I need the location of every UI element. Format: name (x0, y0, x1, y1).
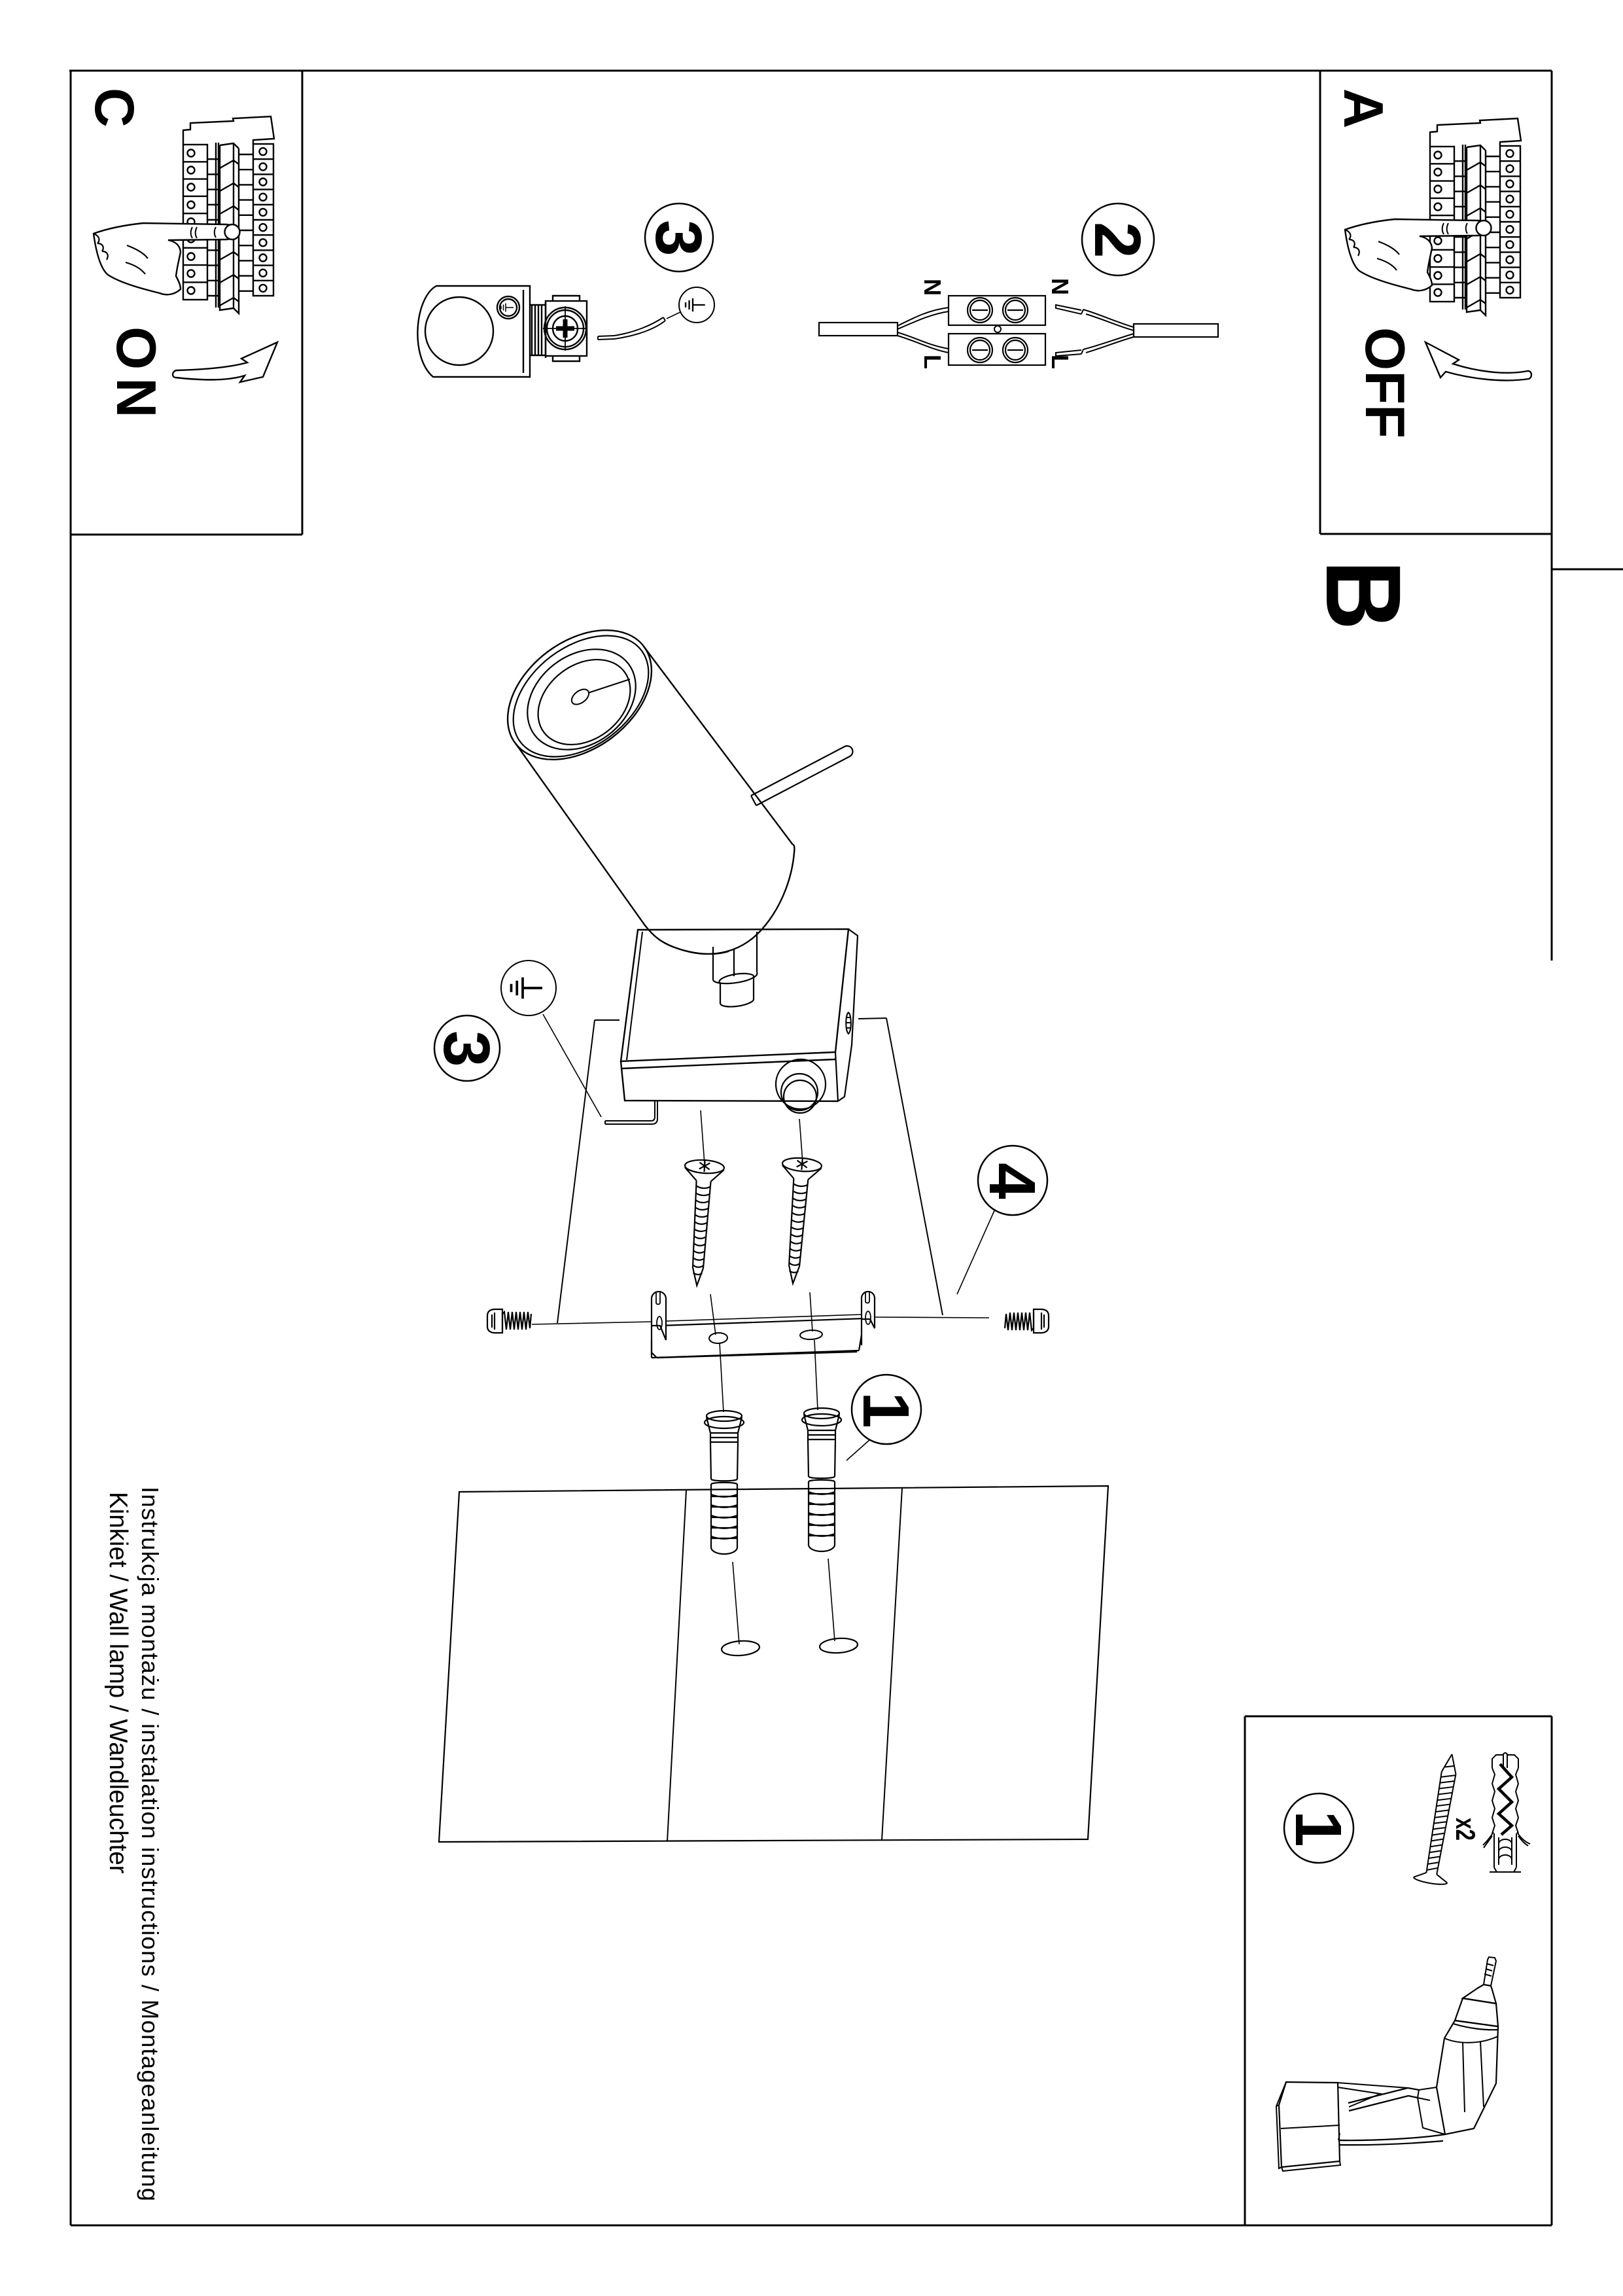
svg-text:4: 4 (975, 1163, 1049, 1199)
svg-text:N: N (919, 279, 946, 296)
svg-text:x2: x2 (1450, 1818, 1481, 1841)
svg-text:Kinkiet / Wall lamp / Wandleuc: Kinkiet / Wall lamp / Wandleuchter (104, 1492, 132, 1874)
svg-text:3: 3 (430, 1031, 503, 1067)
svg-text:C: C (84, 88, 145, 128)
svg-text:3: 3 (642, 220, 715, 256)
svg-text:ON: ON (105, 327, 167, 426)
svg-text:B: B (1304, 560, 1423, 630)
svg-text:L: L (1047, 355, 1073, 369)
svg-text:OFF: OFF (1353, 327, 1416, 438)
svg-text:L: L (919, 355, 946, 369)
svg-text:1: 1 (1282, 1810, 1355, 1847)
svg-text:2: 2 (1081, 222, 1154, 258)
svg-text:A: A (1332, 88, 1394, 128)
svg-text:Instrukcja montażu / instalati: Instrukcja montażu / instalation instruc… (137, 1487, 164, 2202)
svg-text:1: 1 (849, 1392, 922, 1428)
svg-text:N: N (1047, 278, 1073, 295)
